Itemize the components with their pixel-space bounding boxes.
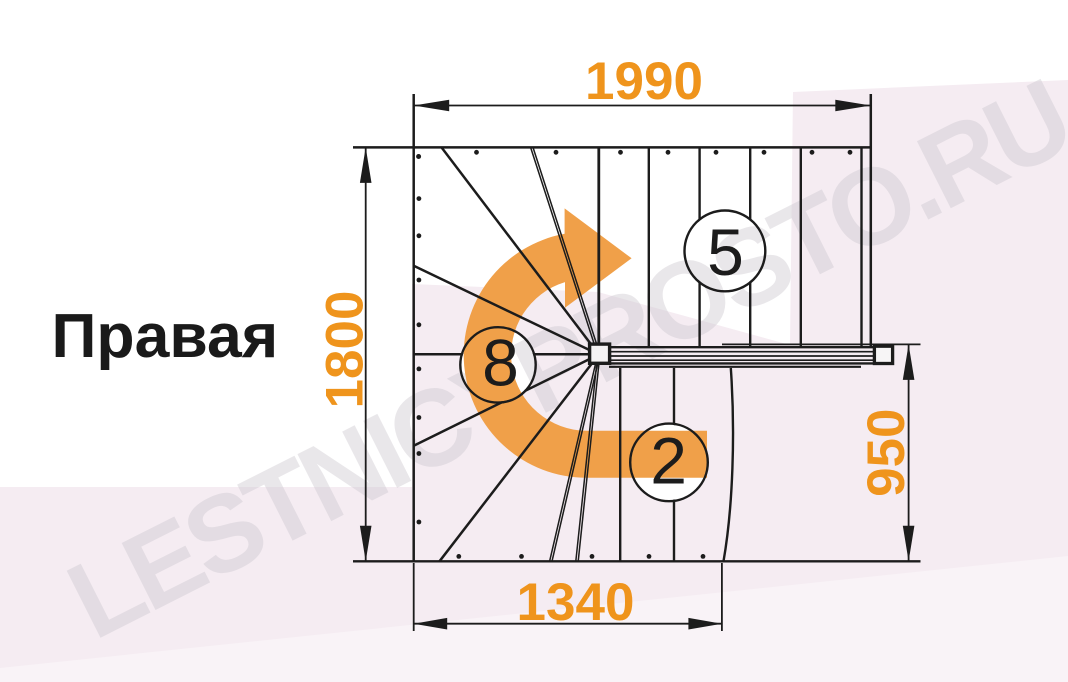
svg-text:950: 950	[857, 408, 916, 496]
svg-text:1990: 1990	[585, 52, 703, 111]
svg-text:5: 5	[707, 215, 744, 289]
svg-text:Правая: Правая	[52, 301, 279, 371]
svg-text:1800: 1800	[316, 291, 375, 409]
svg-text:2: 2	[650, 424, 687, 498]
svg-text:8: 8	[482, 326, 519, 400]
svg-text:1340: 1340	[517, 573, 635, 632]
